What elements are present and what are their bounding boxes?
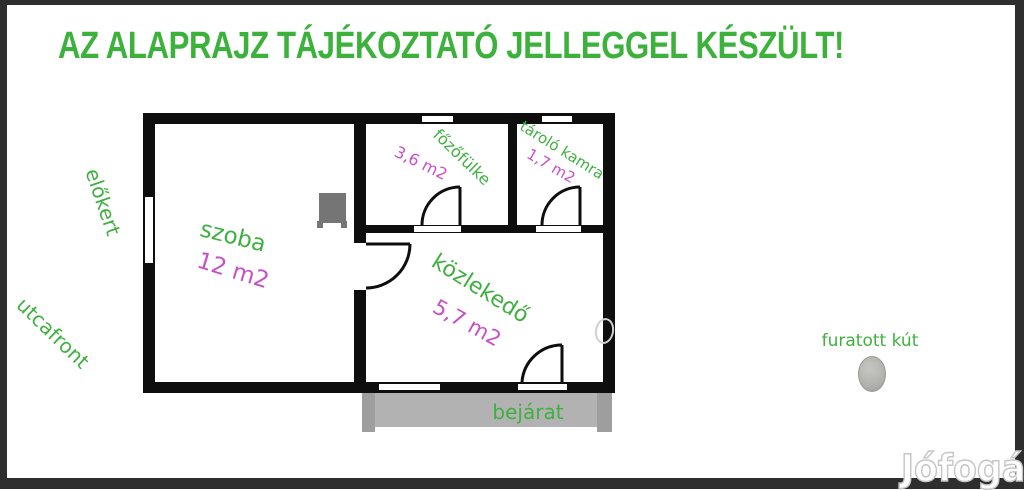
stove-block bbox=[319, 193, 346, 223]
well-marker bbox=[858, 356, 886, 392]
door-pantry bbox=[542, 187, 580, 225]
window-kitchenette bbox=[422, 116, 453, 122]
label-entrance: bejárat bbox=[492, 400, 563, 424]
frame-border-bottom bbox=[0, 478, 1024, 489]
wall-right bbox=[603, 113, 615, 393]
wall-pantry-divider bbox=[508, 113, 517, 233]
label-front-garden: előkert bbox=[80, 165, 125, 238]
wall-szoba-divider-upper bbox=[354, 113, 366, 243]
window-pantry bbox=[542, 116, 572, 122]
label-street-front: utcafront bbox=[12, 293, 94, 374]
stove-foot-right bbox=[341, 221, 347, 228]
label-well: furatott kút bbox=[822, 331, 919, 351]
threshold-kitchenette-door bbox=[414, 226, 461, 232]
threshold-entrance-door bbox=[518, 384, 567, 390]
door-hall bbox=[366, 244, 410, 288]
door-entrance bbox=[522, 345, 562, 382]
porch-strip bbox=[362, 391, 612, 427]
window-left-wall bbox=[145, 197, 153, 263]
disclaimer-title: AZ ALAPRAJZ TÁJÉKOZTATÓ JELLEGGEL KÉSZÜL… bbox=[58, 25, 844, 68]
window-bottom-wall bbox=[379, 384, 440, 390]
stove-foot-left bbox=[317, 221, 323, 228]
threshold-pantry-door bbox=[536, 226, 581, 232]
frame-border-top bbox=[0, 0, 1024, 5]
frame-border-left bbox=[0, 0, 7, 489]
door-kitchenette bbox=[422, 187, 460, 225]
porch-cap-left bbox=[362, 391, 375, 432]
frame-border-right bbox=[1015, 0, 1024, 489]
site-watermark: Jófogás bbox=[901, 447, 1024, 490]
porch-cap-right bbox=[597, 391, 612, 432]
wall-szoba-divider-lower bbox=[354, 290, 366, 393]
